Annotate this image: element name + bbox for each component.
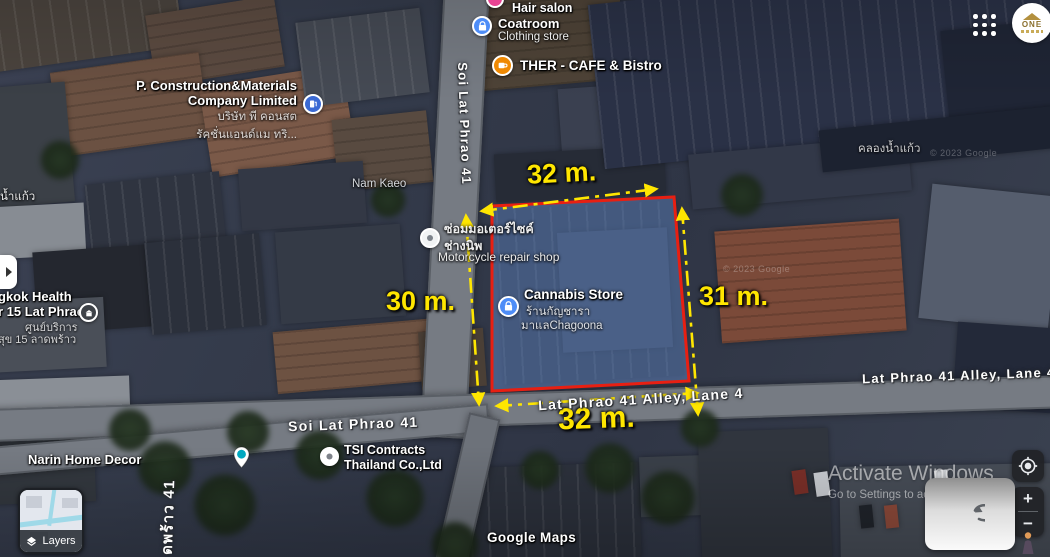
map-building	[859, 504, 874, 528]
construction-thai-line2: รัคชั่นแอนด์แม ทริ...	[95, 126, 297, 144]
place-label-nam-kaeo-left: น้ำแก้ว	[0, 188, 35, 206]
construction-name-line2: Company Limited	[95, 93, 297, 108]
zoom-control: + −	[1012, 487, 1044, 537]
coffee-cup-icon	[497, 60, 508, 71]
logo-roof-icon	[1023, 13, 1041, 20]
building-icon	[84, 308, 94, 318]
cafe-icon[interactable]	[492, 55, 513, 76]
repair-wrench-icon	[425, 233, 435, 243]
coatroom-label[interactable]: Coatroom	[498, 16, 559, 31]
layers-button[interactable]: Layers	[18, 488, 84, 554]
grid-dot	[973, 23, 978, 28]
tsi-pin-icon[interactable]	[320, 447, 339, 466]
chevron-right-icon	[6, 267, 12, 277]
health-thai-line2: สุข 15 ลาดพร้าว	[0, 330, 76, 348]
map-building	[273, 318, 443, 394]
map-tree	[193, 473, 257, 537]
place-label-nam-kaeo: Nam Kaeo	[352, 178, 406, 190]
place-label-canal: คลองน้ำแก้ว	[858, 140, 920, 158]
logo-decor	[1021, 30, 1043, 33]
map-building	[144, 233, 267, 335]
narin-pin-icon[interactable]	[233, 446, 250, 469]
google-copyright-1: © 2023 Google	[930, 148, 997, 158]
construction-thai-line1: บริษัท พี คอนสต	[95, 108, 297, 126]
grid-dot	[982, 23, 987, 28]
rotate-view-card[interactable]	[925, 478, 1015, 550]
apps-grid-icon[interactable]	[973, 14, 996, 36]
map-tree	[40, 140, 80, 180]
construction-name-line1: P. Construction&Materials	[95, 78, 297, 93]
rotate-arrow-icon	[955, 504, 985, 524]
grid-dot	[973, 14, 978, 19]
map-building	[918, 184, 1050, 332]
map-building	[295, 8, 429, 108]
grid-dot	[991, 14, 996, 19]
narin-home-decor-label[interactable]: Narin Home Decor	[28, 452, 141, 467]
map-tree	[720, 173, 764, 217]
map-tree	[520, 450, 560, 490]
map-building	[238, 161, 367, 232]
hair-salon-label[interactable]: Hair salon	[512, 1, 572, 15]
zoom-in-button[interactable]: +	[1012, 487, 1044, 511]
street-label-thai-vertical: ดพร้าว 41	[154, 452, 183, 557]
tsi-name-line1[interactable]: TSI Contracts	[344, 443, 425, 457]
thumb-block	[62, 498, 78, 508]
my-location-button[interactable]	[1012, 450, 1044, 482]
map-tree	[640, 470, 696, 526]
grid-dot	[991, 31, 996, 36]
map-tree	[680, 408, 720, 448]
shopping-bag-icon	[503, 301, 514, 312]
pegman-icon[interactable]	[1019, 531, 1037, 555]
dimension-line-right	[682, 209, 698, 414]
grid-dot	[991, 23, 996, 28]
shopping-bag-icon	[477, 21, 488, 32]
my-location-icon	[1018, 456, 1038, 476]
coatroom-icon[interactable]	[472, 16, 492, 36]
google-maps-attribution: Google Maps	[487, 530, 576, 545]
logo-text: ONE	[1022, 20, 1042, 29]
coatroom-type-label: Clothing store	[498, 31, 569, 43]
motorcycle-shop-icon[interactable]	[420, 228, 440, 248]
dimension-label-top: 32 m.	[526, 156, 597, 191]
layers-label: Layers	[42, 535, 75, 547]
google-copyright-2: © 2023 Google	[723, 264, 790, 274]
thumb-block	[26, 496, 42, 508]
map-canvas[interactable]: 32 m. 30 m. 31 m. 32 m. Soi Lat Phrao 41…	[0, 0, 1050, 557]
layers-label-bar: Layers	[20, 530, 82, 552]
health-name-line1: gkok Health	[0, 289, 72, 304]
map-tree	[108, 408, 152, 452]
cannabis-thai-line2: มาแลChagoona	[521, 317, 603, 335]
motorcycle-shop-label[interactable]: Motorcycle repair shop	[438, 250, 559, 264]
dimension-label-right: 31 m.	[699, 281, 768, 312]
tsi-name-line2: Thailand Co.,Ltd	[344, 458, 442, 472]
dimension-label-left: 30 m.	[386, 286, 455, 317]
map-tree	[584, 442, 636, 494]
map-tree	[365, 468, 425, 528]
grid-dot	[982, 14, 987, 19]
grid-dot	[982, 31, 987, 36]
map-building	[698, 428, 832, 557]
health-center-icon[interactable]	[79, 303, 98, 322]
construction-icon[interactable]	[303, 94, 323, 114]
cannabis-store-icon[interactable]	[498, 296, 519, 317]
side-panel-expand-button[interactable]	[0, 255, 17, 289]
cannabis-store-label[interactable]: Cannabis Store	[524, 287, 623, 302]
company-logo-badge: ONE	[1012, 3, 1050, 43]
health-name-line2: r 15 Lat Phrao	[0, 304, 85, 319]
layers-icon	[26, 536, 37, 547]
construction-label[interactable]: P. Construction&Materials Company Limite…	[95, 78, 297, 144]
cafe-label[interactable]: THER - CAFE & Bistro	[520, 58, 662, 73]
dot-icon	[325, 452, 334, 461]
map-building	[884, 504, 899, 528]
fuel-pump-icon	[308, 99, 318, 109]
grid-dot	[973, 31, 978, 36]
